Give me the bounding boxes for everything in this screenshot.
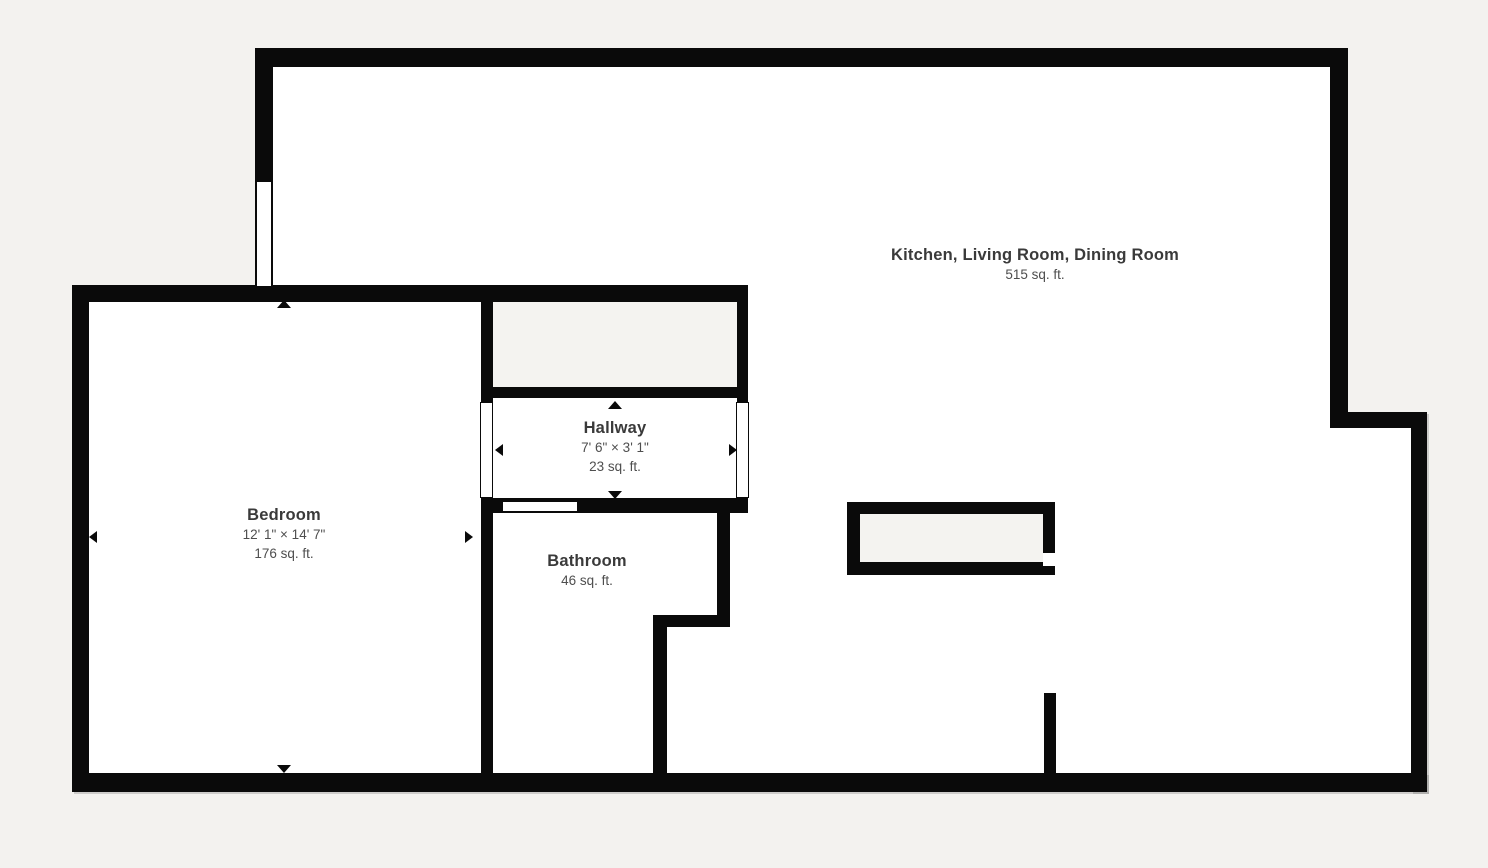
door-opening-hallway-right — [736, 402, 749, 498]
wall-exterior-bottom — [72, 773, 1427, 792]
kitchen-island-counter — [860, 514, 1043, 562]
arrow-right-icon — [465, 531, 473, 543]
arrow-left-icon — [89, 531, 97, 543]
room-label-hallway: Hallway 7' 6" × 3' 1" 23 sq. ft. — [581, 419, 649, 476]
window — [256, 181, 272, 287]
closet-area-fill — [493, 302, 737, 387]
arrow-down-icon — [608, 491, 622, 499]
wall-exterior-left-lower — [72, 285, 89, 792]
arrow-up-icon — [608, 401, 622, 409]
wall-closet-divider — [493, 387, 737, 398]
kitchen-island-notch — [1043, 553, 1055, 566]
room-label-bathroom: Bathroom 46 sq. ft. — [547, 552, 627, 590]
arrow-up-icon — [277, 300, 291, 308]
door-opening-hallway-left — [480, 402, 493, 498]
room-dimensions: 12' 1" × 14' 7" — [243, 525, 326, 544]
arrow-right-icon — [729, 444, 737, 456]
room-name: Bathroom — [547, 552, 627, 571]
wall-bathroom-right-lower — [653, 615, 667, 773]
room-label-bedroom: Bedroom 12' 1" × 14' 7" 176 sq. ft. — [243, 506, 326, 563]
partial-wall-stub — [1044, 693, 1056, 773]
room-dimensions: 7' 6" × 3' 1" — [581, 438, 649, 457]
floor-plan: Kitchen, Living Room, Dining Room 515 sq… — [0, 0, 1488, 868]
wall-bathroom-right-upper — [717, 513, 730, 627]
room-area: 23 sq. ft. — [581, 457, 649, 476]
room-label-kitchen-living-dining: Kitchen, Living Room, Dining Room 515 sq… — [891, 246, 1179, 284]
wall-exterior-right-upper — [1330, 48, 1348, 428]
wall-exterior-top — [255, 48, 1348, 67]
wall-bedroom-right — [481, 285, 493, 773]
wall-bedroom-top — [72, 285, 748, 302]
room-name: Bedroom — [243, 506, 326, 525]
bathroom-area-fill-lower — [493, 615, 653, 773]
room-area: 515 sq. ft. — [891, 265, 1179, 284]
arrow-left-icon — [495, 444, 503, 456]
room-name: Hallway — [581, 419, 649, 438]
door-opening-bathroom — [502, 501, 578, 512]
wall-exterior-right-lower — [1411, 412, 1427, 792]
living-area-fill-far-right — [1330, 428, 1411, 773]
room-name: Kitchen, Living Room, Dining Room — [891, 246, 1179, 265]
room-area: 46 sq. ft. — [547, 571, 627, 590]
arrow-down-icon — [277, 765, 291, 773]
room-area: 176 sq. ft. — [243, 544, 326, 563]
